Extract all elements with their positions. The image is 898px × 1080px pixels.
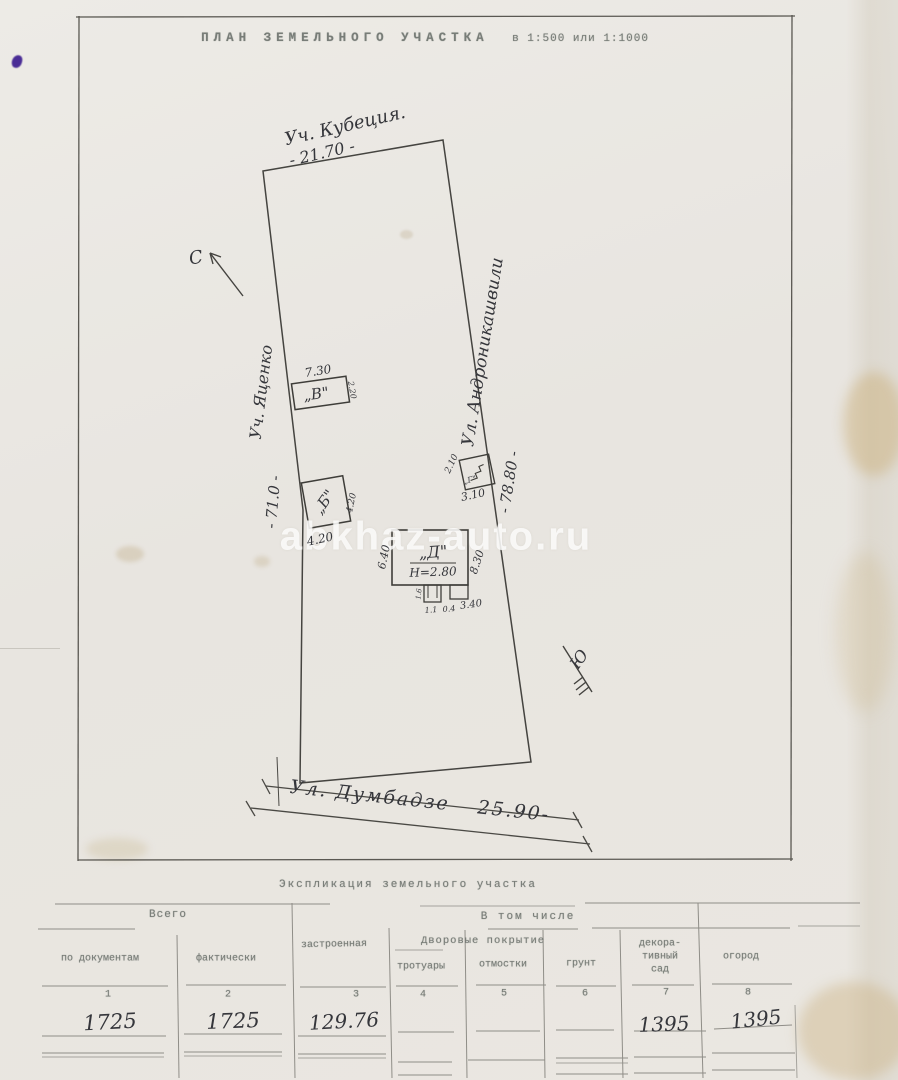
- building-d-dim-notch: 1.6: [415, 588, 424, 600]
- table-group-including: В том числе: [481, 911, 576, 923]
- building-d-label: „Д": [418, 542, 448, 563]
- page-title-scale: в 1:500 или 1:1000: [512, 33, 649, 45]
- table-colnum-5: 5: [501, 989, 507, 1000]
- table-colnum-8: 8: [745, 988, 751, 999]
- table-title: Экспликация земельного участка: [279, 879, 537, 891]
- table-col-garden-l3: сад: [651, 965, 669, 976]
- building-d-dim-bottom-1: 1.1: [424, 605, 437, 615]
- table-colnum-4: 4: [420, 990, 426, 1001]
- table-group-total: Всего: [149, 909, 187, 921]
- table-col-docs: по документам: [61, 954, 139, 965]
- table-rules: [38, 903, 860, 1078]
- table-colnum-1: 1: [105, 990, 111, 1001]
- table-col-sidewalks: тротуары: [397, 962, 445, 973]
- value-garden: 1395: [638, 1011, 690, 1037]
- table-colnum-7: 7: [663, 988, 669, 999]
- table-colnum-6: 6: [582, 989, 588, 1000]
- table-col-soil: грунт: [566, 959, 596, 970]
- building-d-height: Н=2.80: [409, 564, 457, 580]
- table-colnum-3: 3: [353, 990, 359, 1001]
- north-arrow: [210, 253, 243, 296]
- value-actual: 1725: [206, 1008, 260, 1034]
- building-d-dim-bottom-2: 0.4: [442, 604, 455, 614]
- table-col-built: застроенная: [301, 939, 367, 951]
- table-col-actual: фактически: [196, 954, 256, 965]
- table-col-garden-l1: декора-: [639, 939, 681, 950]
- scanned-land-plan-page: { "page": { "title_main": "ПЛАН ЗЕМЕЛЬНО…: [0, 0, 898, 1080]
- table-col-kitchengarden: огород: [723, 952, 759, 963]
- table-col-blindarea: отмостки: [479, 960, 527, 971]
- table-colnum-2: 2: [225, 990, 231, 1001]
- value-built: 129.76: [308, 1007, 379, 1035]
- value-docs: 1725: [83, 1009, 138, 1036]
- page-title-main: ПЛАН ЗЕМЕЛЬНОГО УЧАСТКА: [201, 31, 489, 45]
- table-group-yard: Дворовые покрытие: [421, 935, 545, 947]
- table-col-garden-l2: тивный: [642, 952, 678, 963]
- building-v-label: „В": [302, 383, 330, 404]
- page-title: ПЛАН ЗЕМЕЛЬНОГО УЧАСТКА в 1:500 или 1:10…: [201, 31, 649, 45]
